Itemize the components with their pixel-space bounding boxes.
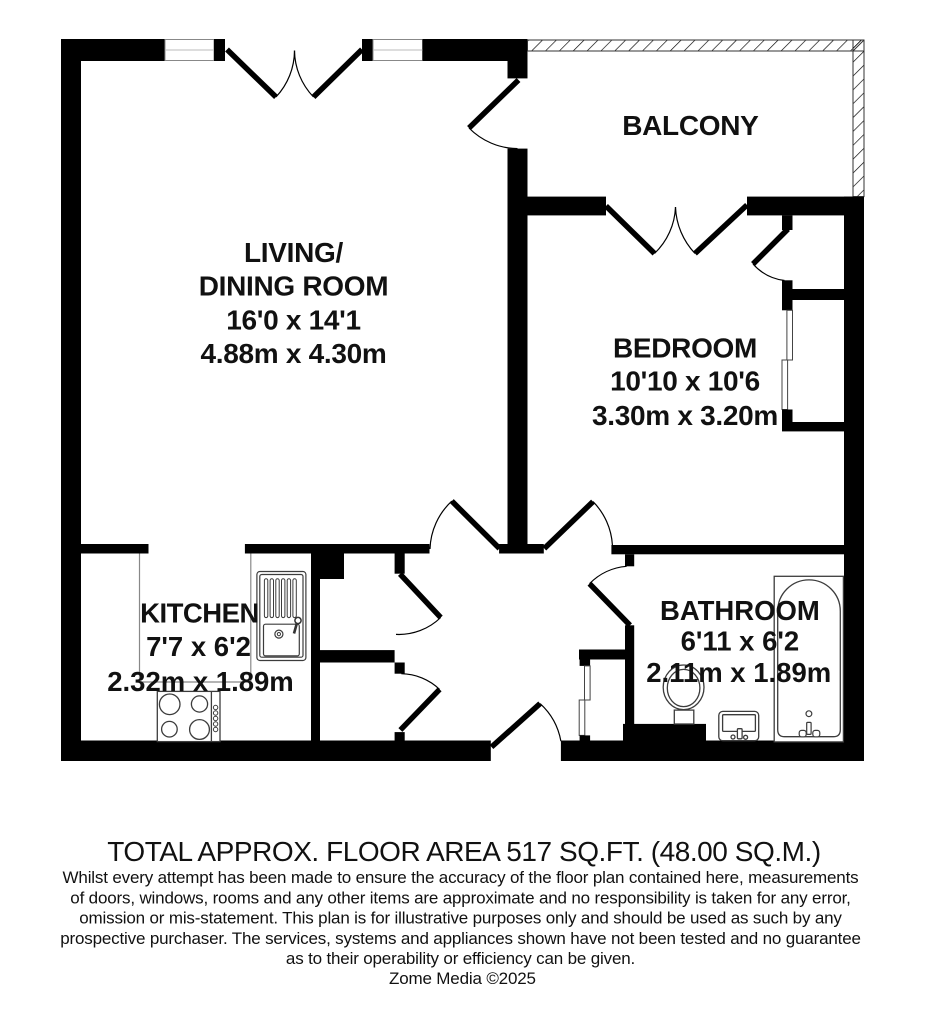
- svg-text:of doors, windows, rooms and a: of doors, windows, rooms and any other i…: [70, 888, 850, 907]
- svg-text:BEDROOM: BEDROOM: [613, 333, 757, 364]
- svg-text:omission or mis-statement. Thi: omission or mis-statement. This plan is …: [79, 909, 842, 928]
- svg-text:10'10 x 10'6: 10'10 x 10'6: [610, 366, 760, 397]
- svg-text:prospective purchaser. The ser: prospective purchaser. The services, sys…: [60, 929, 861, 948]
- svg-text:BATHROOM: BATHROOM: [660, 595, 820, 626]
- svg-text:Whilst every attempt has been: Whilst every attempt has been made to en…: [63, 868, 859, 887]
- svg-text:KITCHEN: KITCHEN: [140, 598, 259, 629]
- svg-text:2.32m x 1.89m: 2.32m x 1.89m: [107, 666, 294, 697]
- svg-text:TOTAL APPROX. FLOOR AREA 517 S: TOTAL APPROX. FLOOR AREA 517 SQ.FT. (48.…: [107, 836, 820, 867]
- svg-text:4.88m x 4.30m: 4.88m x 4.30m: [200, 338, 386, 369]
- svg-text:Zome Media ©2025: Zome Media ©2025: [389, 969, 536, 988]
- svg-text:16'0 x 14'1: 16'0 x 14'1: [226, 305, 361, 336]
- svg-text:BALCONY: BALCONY: [622, 110, 759, 141]
- svg-text:7'7 x 6'2: 7'7 x 6'2: [146, 631, 251, 662]
- svg-text:as to their operability or eff: as to their operability or efficiency ca…: [286, 949, 635, 968]
- svg-text:6'11 x 6'2: 6'11 x 6'2: [681, 626, 800, 657]
- svg-text:2.11m x 1.89m: 2.11m x 1.89m: [646, 657, 831, 688]
- svg-text:3.30m x 3.20m: 3.30m x 3.20m: [592, 400, 778, 431]
- svg-text:LIVING/: LIVING/: [244, 237, 344, 268]
- svg-text:DINING ROOM: DINING ROOM: [199, 270, 389, 301]
